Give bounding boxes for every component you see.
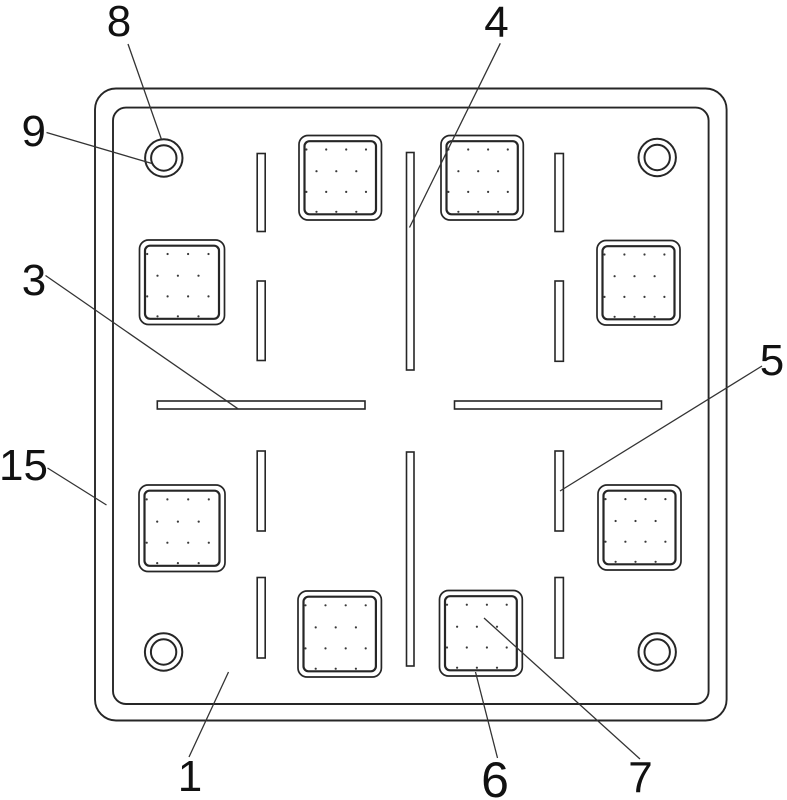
- svg-text:8: 8: [107, 0, 131, 46]
- svg-text:7: 7: [628, 754, 652, 800]
- svg-text:3: 3: [22, 256, 46, 305]
- svg-text:9: 9: [22, 107, 46, 156]
- svg-text:1: 1: [178, 752, 202, 800]
- svg-text:6: 6: [481, 752, 509, 800]
- svg-text:4: 4: [484, 0, 508, 47]
- svg-text:15: 15: [0, 441, 48, 490]
- svg-text:5: 5: [760, 336, 784, 385]
